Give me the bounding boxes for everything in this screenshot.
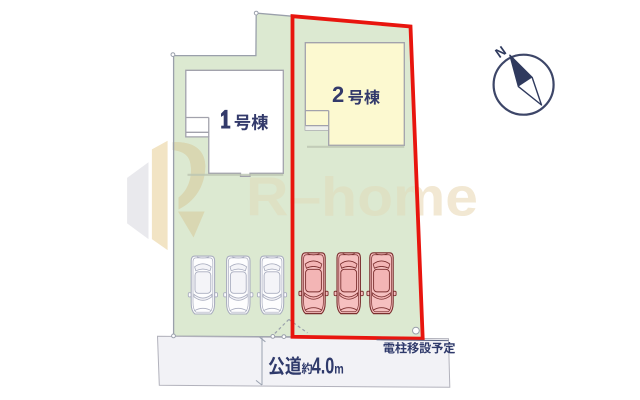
svg-text:m: m [334,361,344,376]
svg-text:4.0: 4.0 [312,352,335,378]
svg-text:2: 2 [332,82,344,107]
svg-text:N: N [492,43,509,61]
